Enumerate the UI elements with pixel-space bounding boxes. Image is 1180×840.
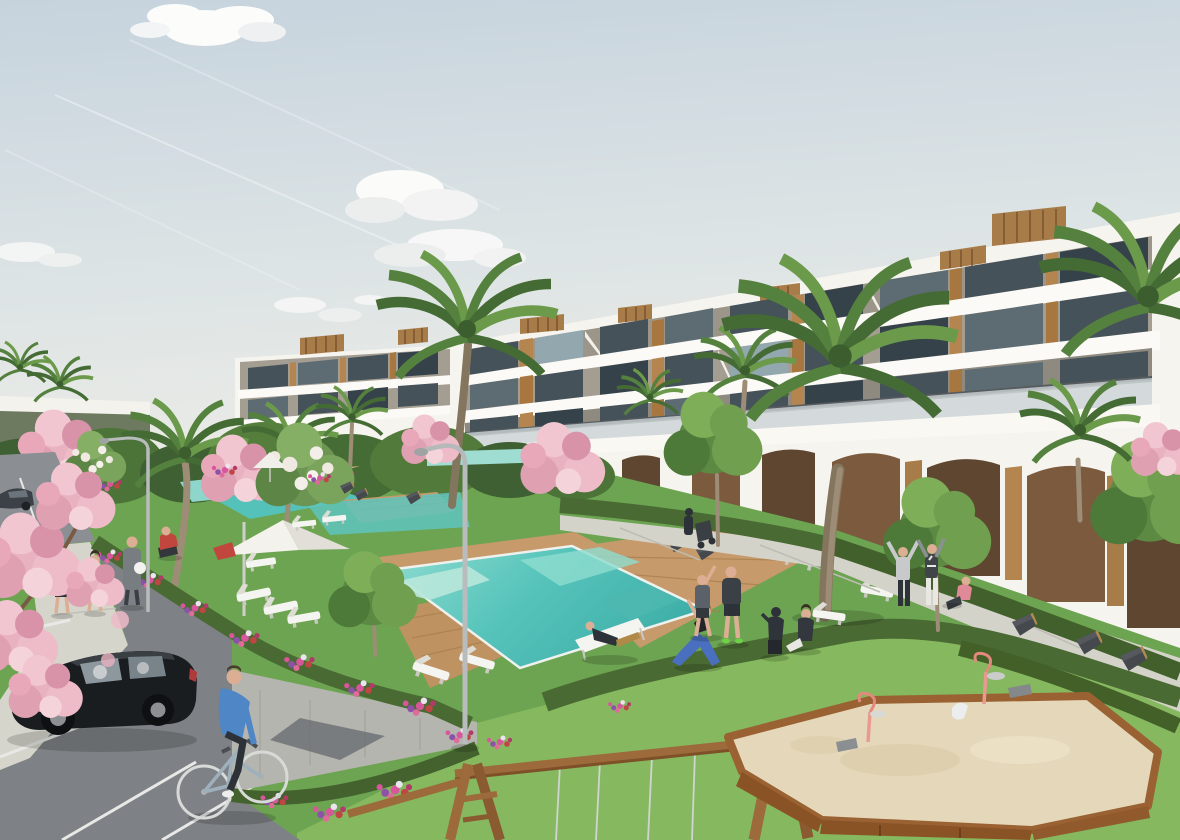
render-canvas (0, 0, 1180, 840)
distant-car (0, 488, 34, 510)
architectural-render (0, 0, 1180, 840)
ball (134, 562, 146, 574)
